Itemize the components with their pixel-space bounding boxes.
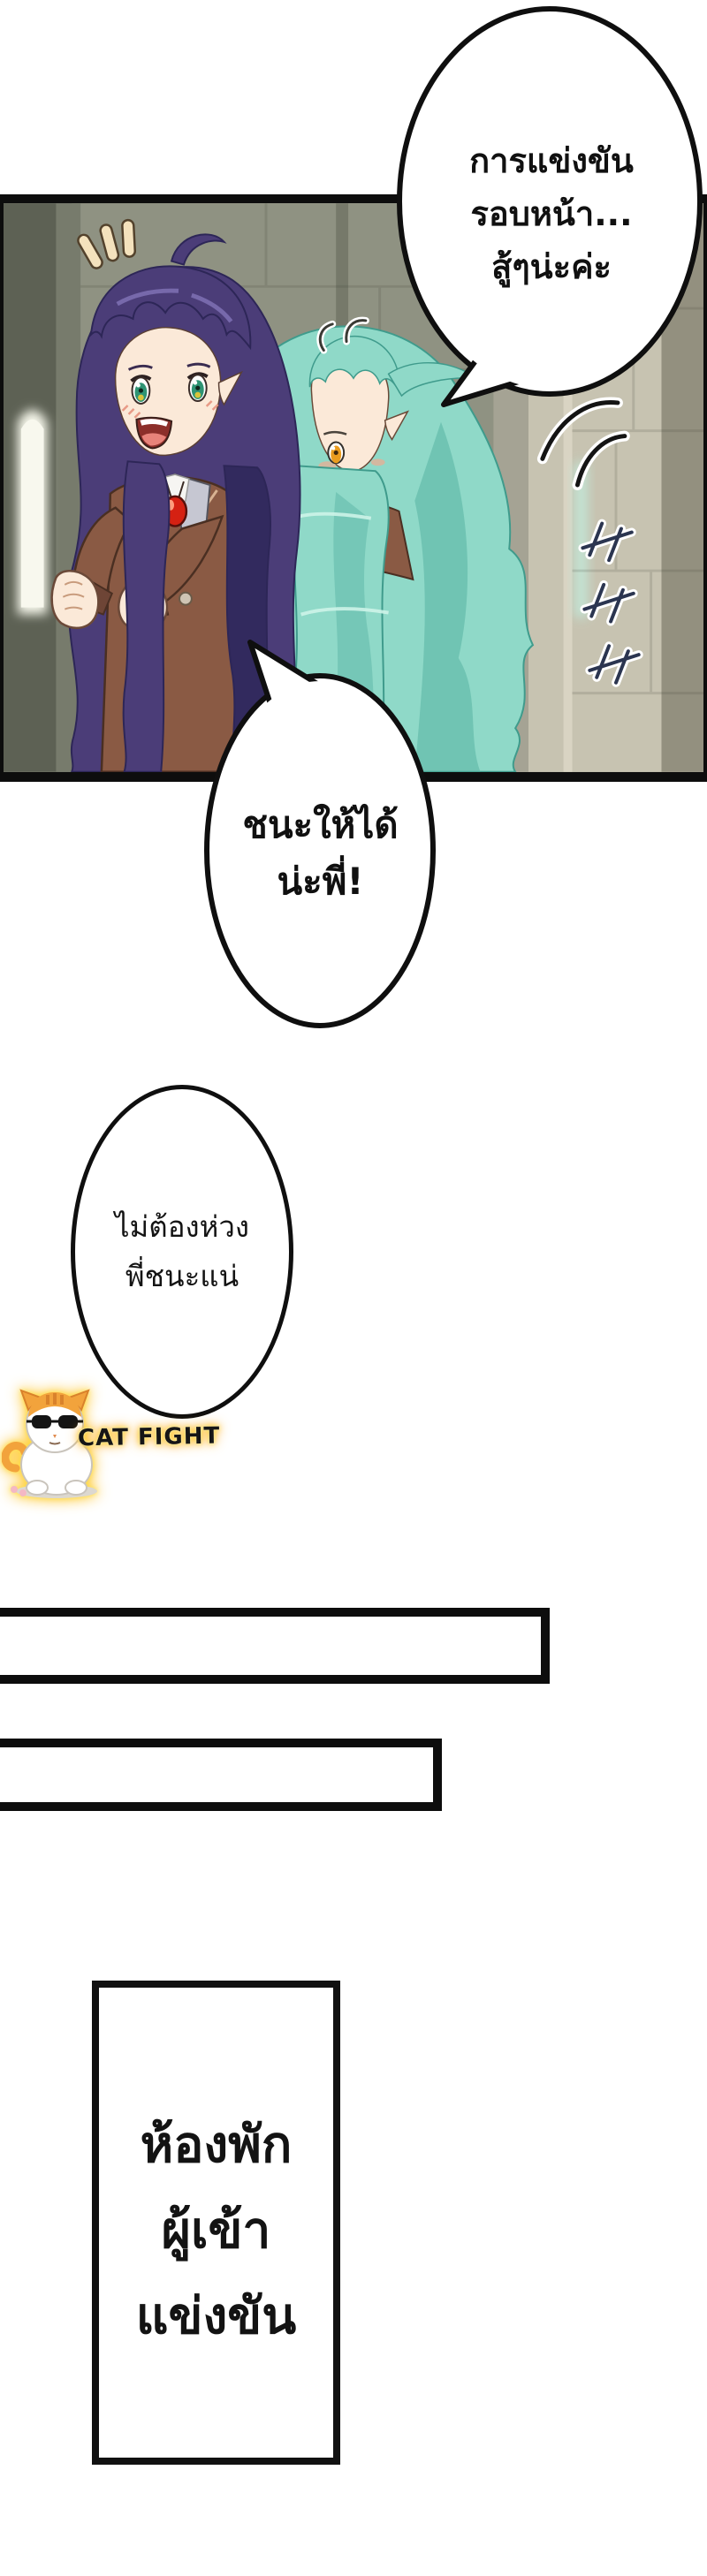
bubble-2-line: น่ะพี่! xyxy=(212,853,429,910)
empty-panel-box-1 xyxy=(0,1608,550,1684)
empty-panel-box-2 xyxy=(0,1739,442,1811)
cat-fight-logo-text: CAT FIGHT xyxy=(78,1423,221,1452)
bubble-1-line: สู้ๆน่ะค่ะ xyxy=(422,240,680,293)
speech-bubble-3: ไม่ต้องห่วง พี่ชนะแน่ xyxy=(71,1085,293,1419)
bubble-1-text: การแข่งขัน รอบหน้า... สู้ๆน่ะค่ะ xyxy=(422,134,680,293)
bubble-1-line: การแข่งขัน xyxy=(422,134,680,187)
left-fist xyxy=(52,571,99,628)
manga-page: การแข่งขัน รอบหน้า... สู้ๆน่ะค่ะ ชนะให้ไ… xyxy=(0,0,707,2576)
bubble-2-line: ชนะให้ได้ xyxy=(212,797,429,853)
bubble-3-line: พี่ชนะแน่ xyxy=(125,1252,239,1301)
bubble-1-line: รอบหน้า... xyxy=(422,187,680,240)
front-hair-strand-left xyxy=(124,461,170,771)
bubble-2-text: ชนะให้ได้ น่ะพี่! xyxy=(212,797,429,910)
sign-line: ห้องพัก xyxy=(99,2102,333,2188)
sign-line: แข่งขัน xyxy=(99,2274,333,2360)
sign-line: ผู้เข้า xyxy=(99,2188,333,2274)
bubble-3-line: ไม่ต้องห่วง xyxy=(115,1202,249,1252)
sign-box: ห้องพัก ผู้เข้า แข่งขัน xyxy=(92,1981,340,2465)
cat-fight-watermark: CAT FIGHT xyxy=(2,1383,267,1516)
